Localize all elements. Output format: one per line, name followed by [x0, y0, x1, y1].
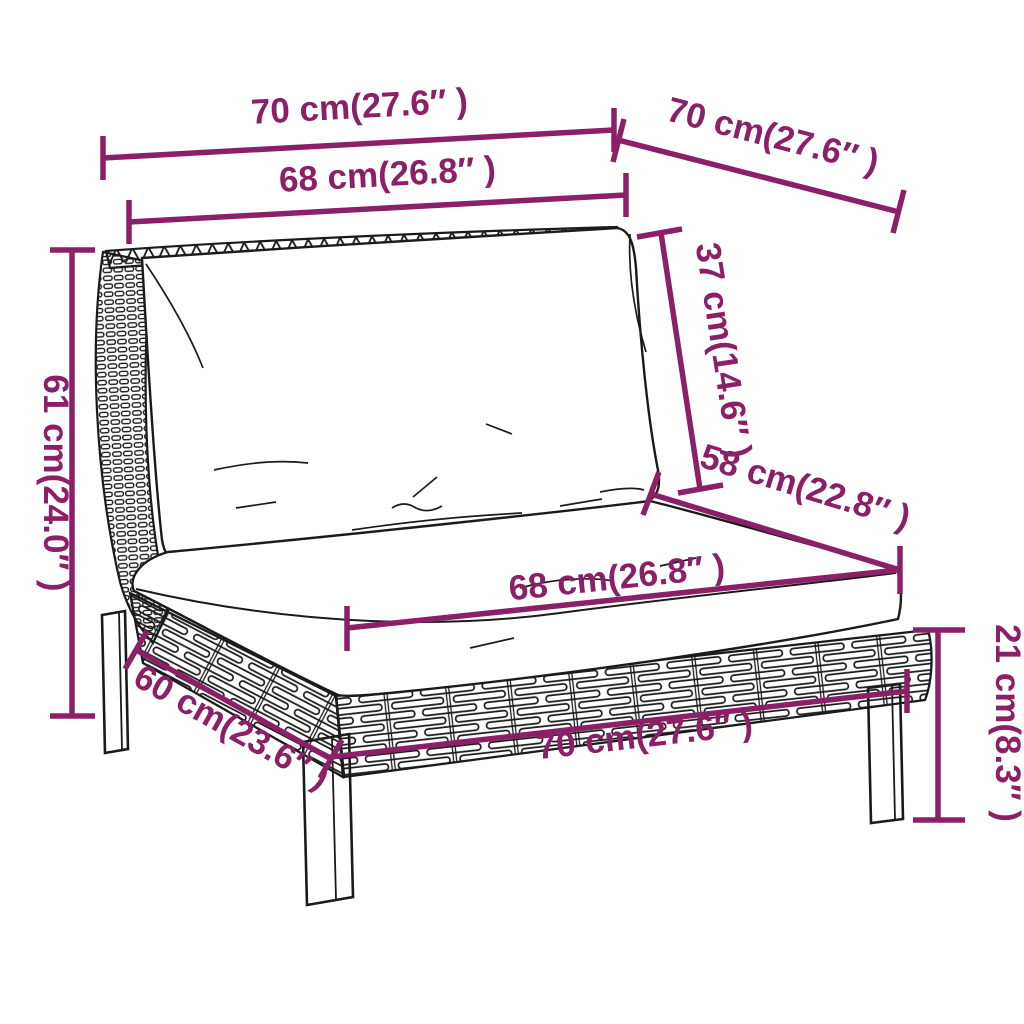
label-top-depth: 70 cm(27.6″ ): [663, 90, 883, 182]
diagram-svg: 70 cm(27.6″ ) 70 cm(27.6″ ) 68 cm(26.8″ …: [0, 0, 1024, 1024]
label-overall-height: 61 cm(24.0″ ): [36, 374, 75, 591]
label-backrest-height: 37 cm(14.6″ ): [688, 240, 759, 461]
dim-line: [129, 195, 626, 222]
label-leg-height: 21 cm(8.3″ ): [988, 624, 1024, 822]
label-back-top-width: 70 cm(27.6″ ): [250, 81, 469, 132]
rear-left-leg: [102, 611, 128, 753]
dim-line: [103, 130, 614, 158]
dimension-diagram: 70 cm(27.6″ ) 70 cm(27.6″ ) 68 cm(26.8″ …: [0, 0, 1024, 1024]
sofa-drawing: [96, 227, 932, 905]
label-back-cushion-width: 68 cm(26.8″ ): [278, 149, 497, 200]
